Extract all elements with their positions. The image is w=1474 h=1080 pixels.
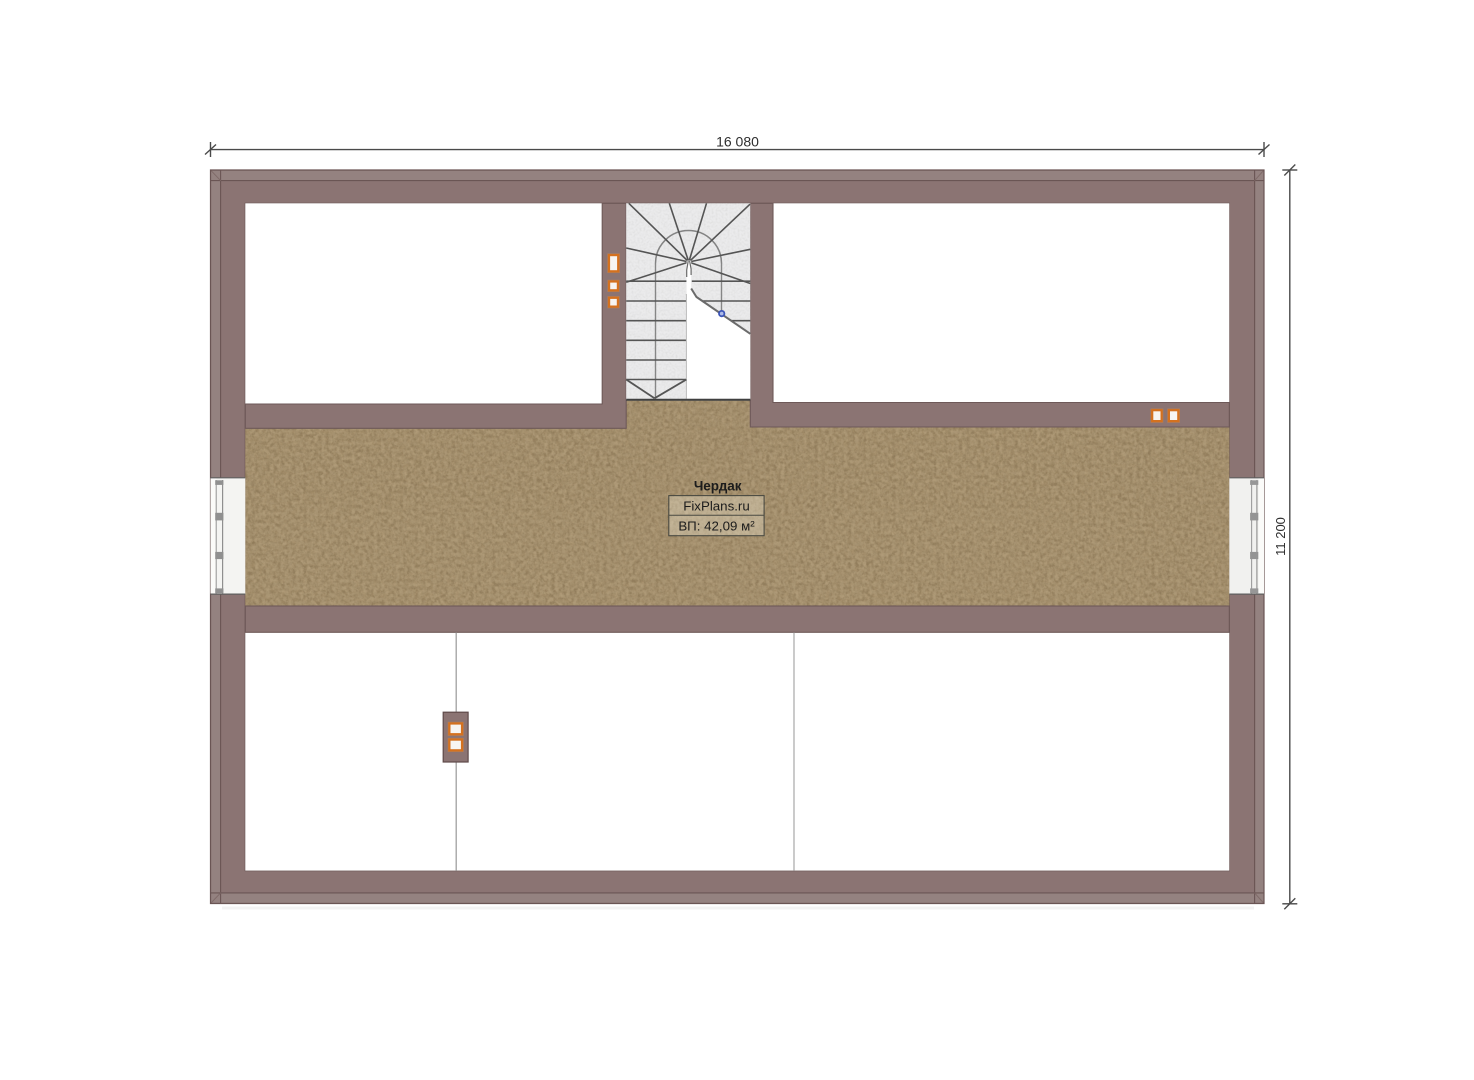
svg-text:11 200: 11 200	[1273, 517, 1288, 556]
svg-text:16 080: 16 080	[716, 133, 759, 149]
svg-text:ВП: 42,09 м²: ВП: 42,09 м²	[678, 519, 755, 534]
svg-text:FixPlans.ru: FixPlans.ru	[683, 499, 750, 514]
svg-text:Чердак: Чердак	[694, 479, 742, 494]
